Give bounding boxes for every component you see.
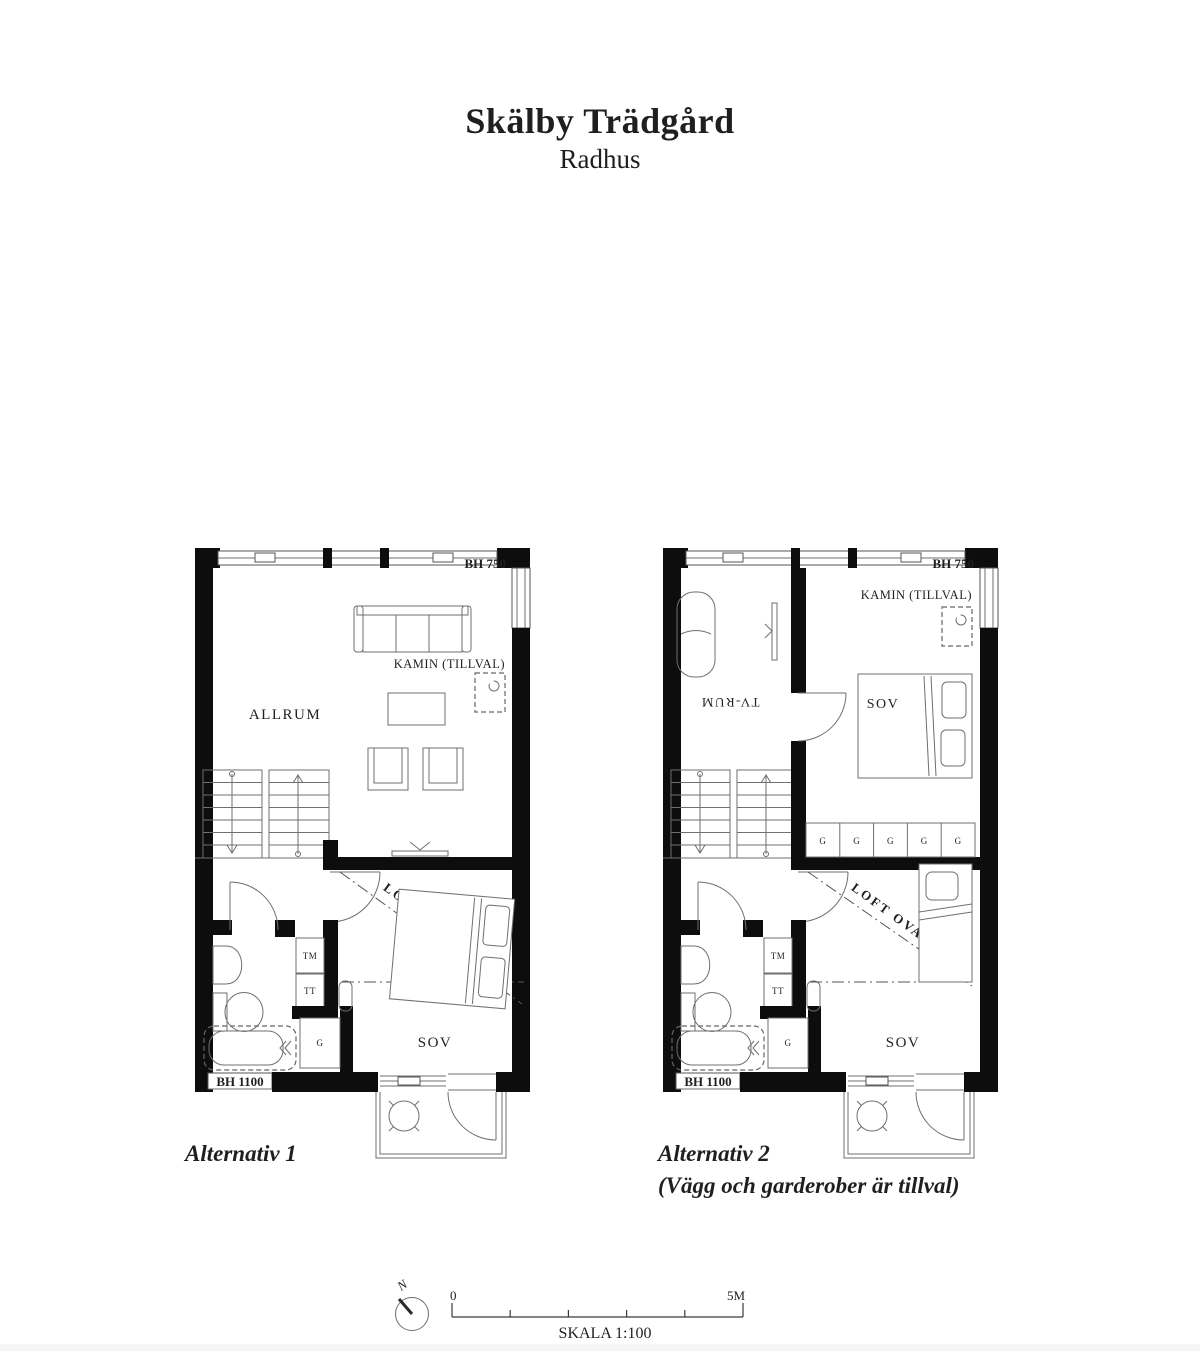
coffee-table <box>388 693 445 725</box>
wall-optional-dividing <box>791 741 806 857</box>
scale-ratio-label: SKALA 1:100 <box>559 1325 652 1342</box>
north-compass: N <box>393 1276 428 1331</box>
pillow <box>941 730 965 766</box>
caption-alternativ-2-note: (Vägg och garderober är tillval) <box>658 1173 960 1199</box>
scale-bar <box>452 1303 743 1317</box>
caption-alternativ-2: Alternativ 2 <box>658 1141 770 1167</box>
pillow <box>942 682 966 718</box>
wardrobe-label: G <box>819 836 826 846</box>
north-label: N <box>393 1276 411 1295</box>
sofa <box>354 606 471 652</box>
tv-on-wall <box>392 842 448 856</box>
wardrobe-label: G <box>887 836 894 846</box>
fireplace-optional <box>475 673 505 712</box>
plan-alternativ-1: ALLRUM KAMIN (TILLVAL) <box>195 548 530 1158</box>
single-bed <box>919 864 972 982</box>
page-title: Skälby Trädgård <box>0 100 1200 142</box>
living-room-label: ALLRUM <box>249 707 321 723</box>
sofa-tv-room <box>677 592 715 677</box>
wall-optional-dividing <box>791 568 806 693</box>
armchair <box>423 748 463 790</box>
armchair <box>368 748 408 790</box>
double-bed <box>390 889 515 1009</box>
door-dividing-wall <box>798 693 846 741</box>
fireplace-label: KAMIN (TILLVAL) <box>394 657 505 671</box>
fireplace-label: KAMIN (TILLVAL) <box>861 588 972 602</box>
tv-on-wall <box>765 603 777 660</box>
wardrobe-label: G <box>853 836 860 846</box>
plan-alternativ-2: TV-RUM KAMIN (TILLVAL) SOV <box>663 548 998 1158</box>
scale-zero-label: 0 <box>450 1288 457 1303</box>
tv-room-label: TV-RUM <box>700 695 759 710</box>
page-subtitle: Radhus <box>0 144 1200 175</box>
wardrobe-label: G <box>921 836 928 846</box>
bedroom-upper-label: SOV <box>867 697 900 712</box>
double-bed-upper <box>858 674 972 778</box>
floor-plan-sheet: Skälby Trädgård Radhus BH 750 <box>0 0 1200 1351</box>
caption-alternativ-1: Alternativ 1 <box>185 1141 297 1167</box>
wardrobe-row-optional: G G G G G <box>806 823 975 857</box>
footer-scale-and-compass: N 0 5M SKALA 1:100 <box>385 1272 815 1350</box>
wardrobe-label: G <box>955 836 962 846</box>
floor-plans-drawing: BH 750 BH 1100 <box>0 540 1200 1165</box>
page-edge-strip <box>0 1344 1200 1351</box>
compass-needle <box>399 1299 412 1314</box>
fireplace-optional <box>942 607 972 646</box>
scale-max-label: 5M <box>727 1288 746 1303</box>
